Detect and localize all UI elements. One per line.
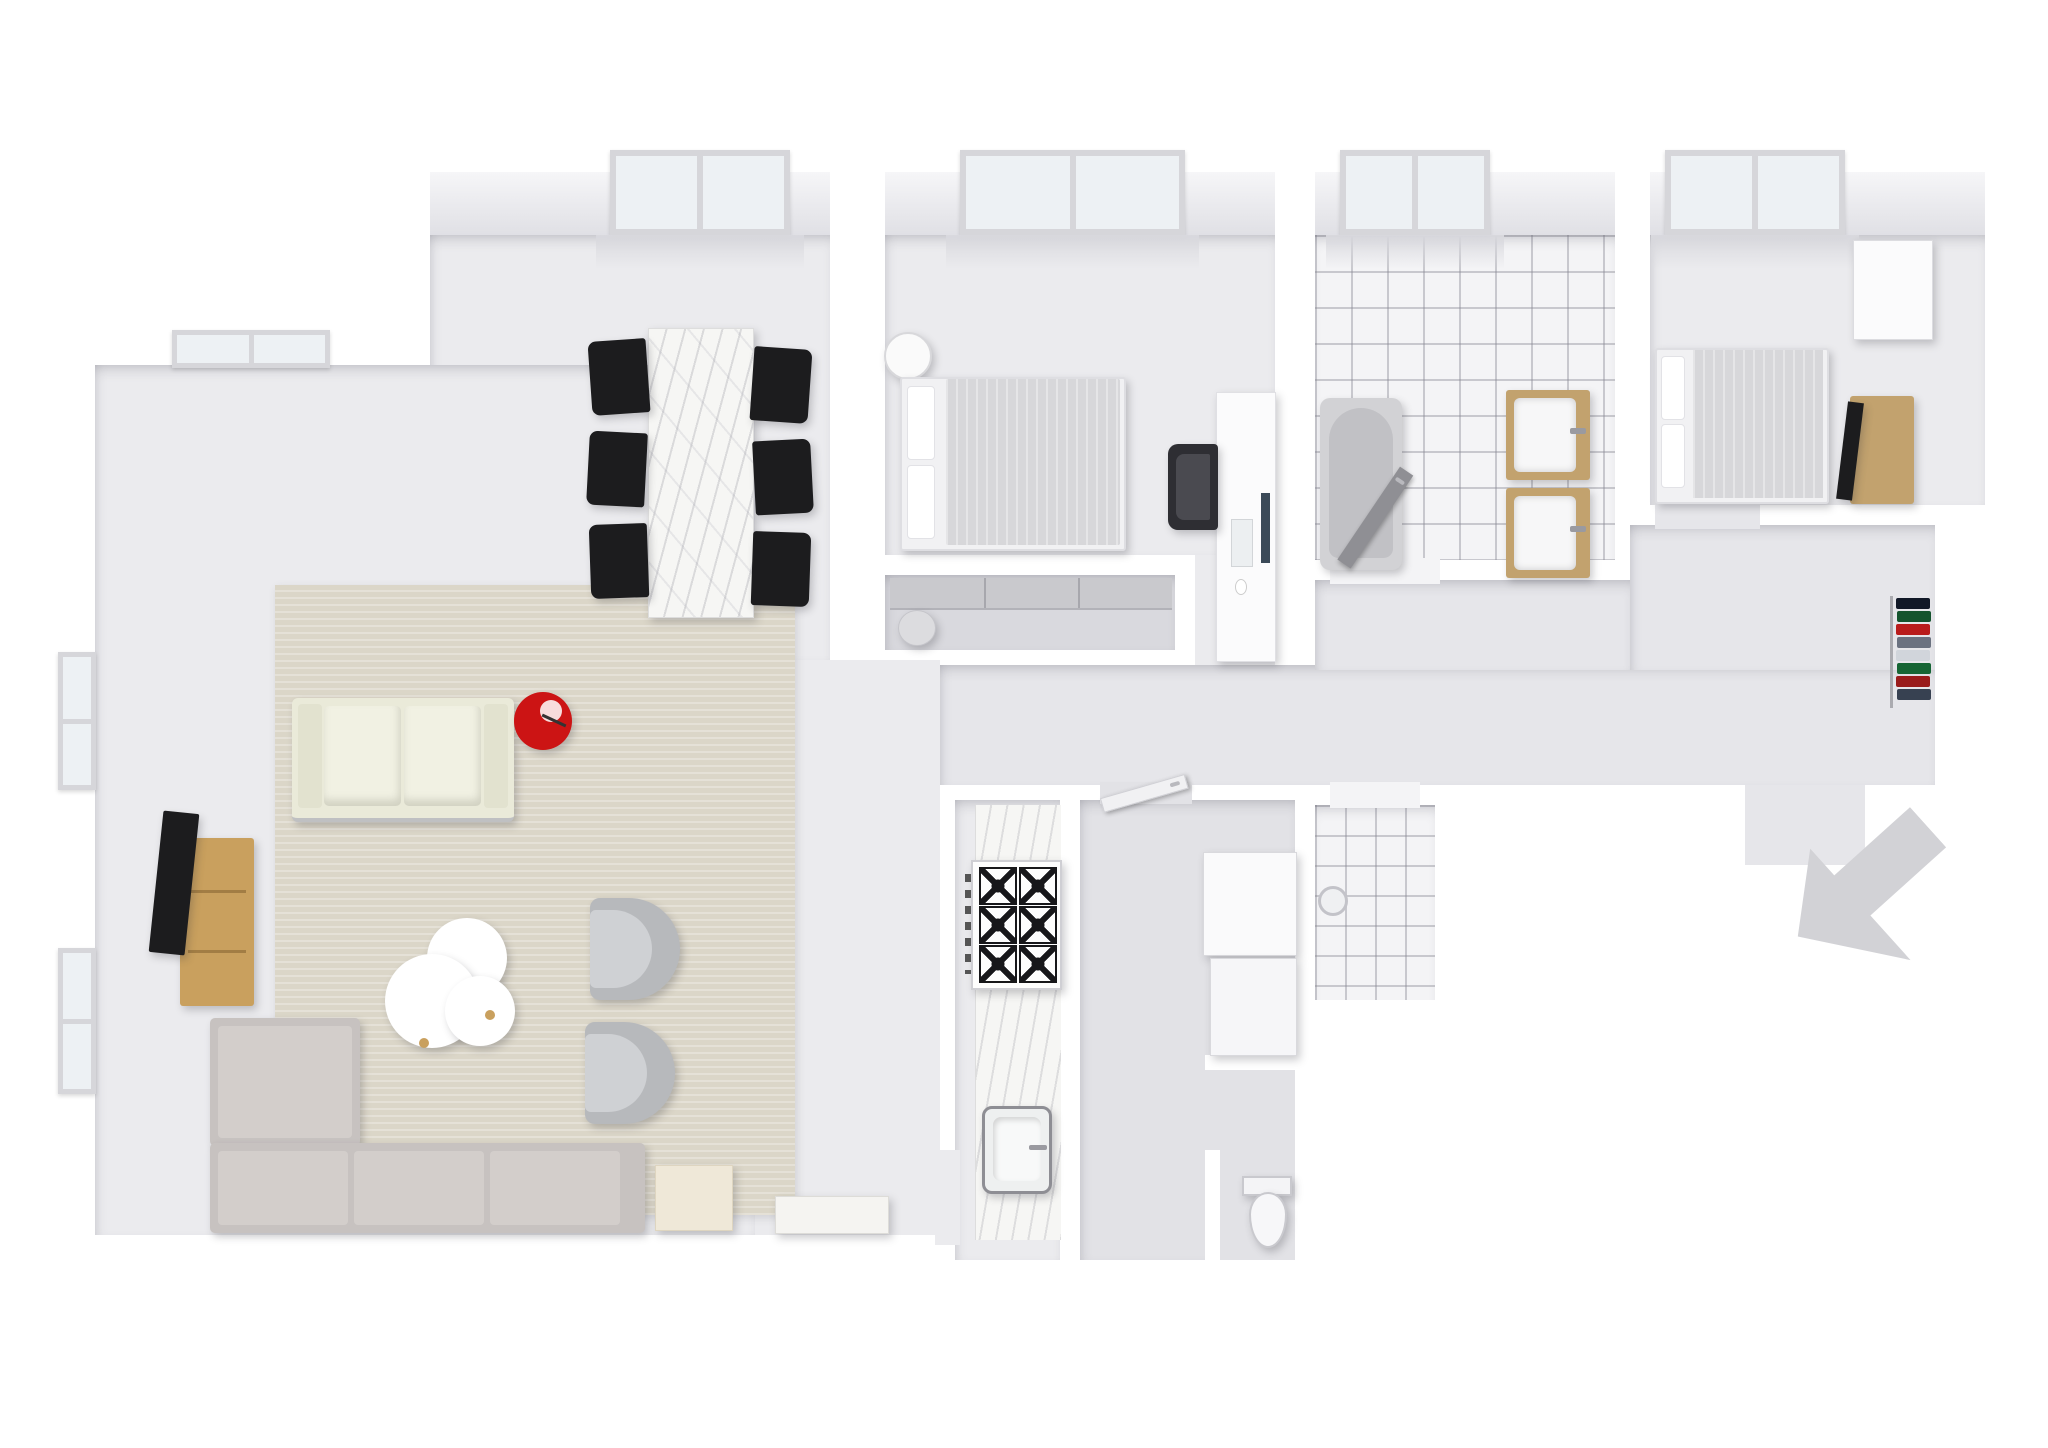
armchair-seat [585, 1034, 647, 1112]
window-bedroom-2 [1665, 150, 1845, 235]
table-leg [419, 1038, 429, 1048]
sideboard-cream [655, 1165, 733, 1231]
sofa-armrest [298, 704, 322, 808]
keyboard [1231, 519, 1253, 567]
office-chair-seat [1176, 454, 1210, 520]
utility-door-opening [1330, 782, 1420, 808]
vanity-sink-2 [1506, 488, 1590, 578]
faucet [1029, 1145, 1047, 1150]
duvet [1693, 350, 1823, 498]
stove-knobs [965, 874, 971, 974]
window-reveal [1651, 235, 1859, 269]
pillow [907, 386, 935, 460]
sofa-cushion [404, 706, 481, 806]
sofa-cream [292, 698, 514, 822]
storage-cabinet-1 [1203, 852, 1297, 956]
floor-hallway [940, 665, 1935, 785]
sectional-cushion [354, 1151, 484, 1225]
window-bedroom-1 [960, 150, 1185, 235]
floor-drain [1318, 886, 1348, 916]
wardrobe-panel-line [1078, 578, 1080, 608]
dining-chair [752, 439, 814, 516]
sink-basin [1514, 496, 1576, 570]
sofa-cushion [324, 706, 401, 806]
window-reveal [1326, 235, 1504, 269]
wc-wall-top [1205, 1055, 1295, 1070]
entrance-opening [1745, 785, 1865, 865]
dining-chair [751, 531, 812, 607]
bench-white [775, 1196, 889, 1234]
window-living-left-2 [58, 948, 96, 1094]
storage-cabinet-2 [1210, 958, 1297, 1056]
coffee-table-cloud [385, 918, 535, 1068]
faucet [1570, 428, 1586, 434]
coat-rack-clothes [1896, 598, 1932, 708]
floor-hallway-bath [1315, 580, 1630, 670]
armchair-seat [590, 910, 652, 988]
console-shelf-line [188, 890, 246, 893]
duvet [946, 379, 1120, 545]
window-living-top [172, 330, 330, 368]
bed-bedroom-2 [1655, 348, 1829, 504]
console-shelf-line [188, 950, 246, 953]
sliding-wardrobe [890, 578, 1172, 610]
desk [1216, 392, 1276, 662]
sectional-cushion [218, 1151, 348, 1225]
dining-chair [586, 431, 648, 508]
pillow [1661, 356, 1685, 420]
bed-bedroom-1 [900, 377, 1126, 551]
window-living-left-1 [58, 652, 96, 790]
window-dining [610, 150, 790, 235]
dining-chair [589, 523, 650, 599]
floor-plan-stage [0, 0, 2048, 1448]
pillow [1661, 424, 1685, 488]
dining-table-marble [648, 328, 754, 618]
sink-basin [1514, 398, 1576, 472]
sectional-cushion [218, 1026, 352, 1138]
mouse [1235, 579, 1247, 595]
dining-chair [587, 338, 650, 416]
closet-stool [898, 610, 936, 646]
window-bathroom [1340, 150, 1490, 235]
stove [971, 860, 1062, 990]
nightstand-round [884, 332, 932, 380]
office-chair [1168, 444, 1218, 530]
dining-chair [749, 346, 812, 424]
floor-lamp-red [514, 692, 572, 750]
pillow [907, 465, 935, 539]
window-reveal [946, 235, 1199, 269]
sofa-armrest [484, 704, 508, 808]
faucet [1570, 526, 1586, 532]
monitor [1261, 493, 1270, 563]
bedroom-2-door-opening [1655, 505, 1760, 529]
wardrobe-panel-line [984, 578, 986, 608]
vanity-sink-1 [1506, 390, 1590, 480]
kitchen-sink [982, 1106, 1052, 1194]
sectional-sofa-long [210, 1143, 645, 1233]
cloud-circle [445, 976, 515, 1046]
kitchen-door-opening [935, 1150, 960, 1245]
wc-wall-left [1205, 1150, 1220, 1260]
sectional-cushion [490, 1151, 620, 1225]
wardrobe-bedroom-2 [1853, 240, 1933, 340]
table-leg [485, 1010, 495, 1020]
coat-rail [1890, 596, 1893, 708]
sectional-sofa-return [210, 1018, 360, 1146]
window-reveal [596, 235, 804, 269]
